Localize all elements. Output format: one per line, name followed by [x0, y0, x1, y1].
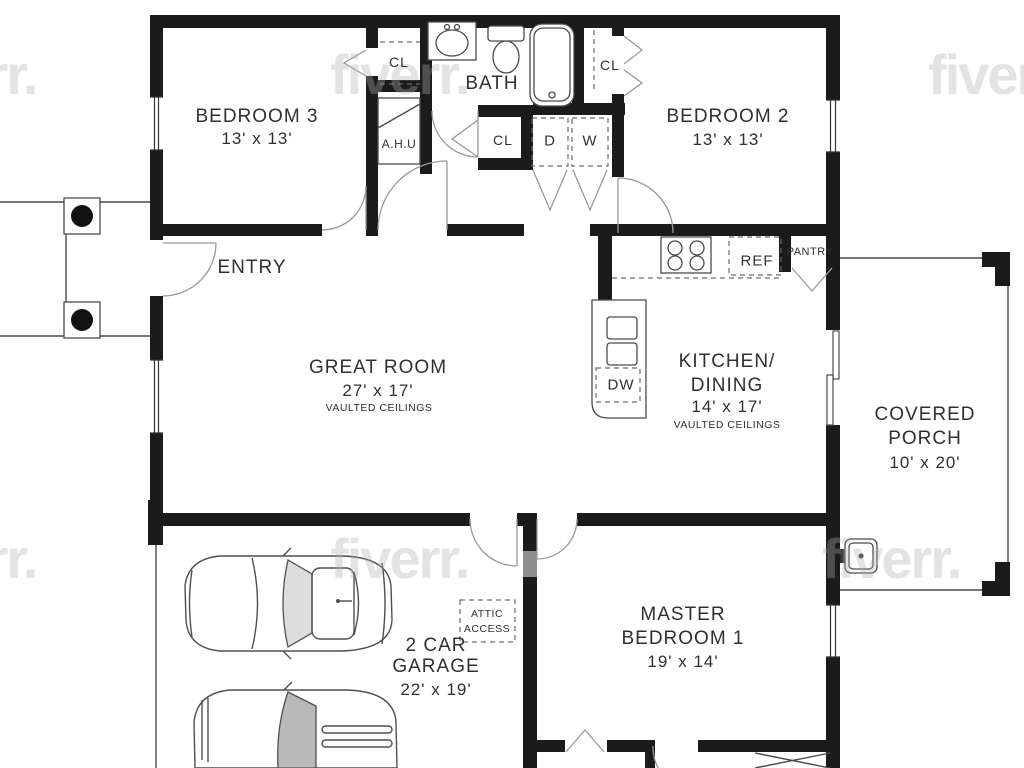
- watermark: fiverr.: [0, 42, 37, 107]
- floor-plan-drawing: [0, 0, 1024, 768]
- bedroom2-window: [826, 100, 840, 152]
- air-handler-icon: [378, 98, 420, 164]
- master-closet-door: [566, 730, 604, 752]
- bedroom2-closet-label: CL: [600, 57, 620, 73]
- bedroom3-closet-label: CL: [389, 54, 409, 70]
- porch-post-icon: [982, 252, 1010, 286]
- bathtub-icon: [530, 24, 574, 106]
- master-window: [826, 605, 840, 657]
- bedroom3-label: BEDROOM 3: [195, 106, 318, 128]
- bedroom3-dims: 13' x 13': [221, 129, 292, 149]
- entry-stoop: [0, 198, 150, 338]
- bedroom3-door: [322, 186, 366, 230]
- dishwasher-label: DW: [608, 377, 635, 394]
- entry-post-icon: [64, 302, 100, 338]
- garage-label-2: GARAGE: [392, 656, 479, 678]
- kitchen-island: [592, 300, 646, 418]
- garage-label-1: 2 CAR: [406, 635, 467, 657]
- porch-label-2: PORCH: [888, 428, 962, 450]
- entry-label: ENTRY: [217, 257, 286, 279]
- great-room-window: [150, 360, 163, 433]
- watermark: fiverr.: [822, 526, 961, 591]
- watermark: fiverr.: [928, 42, 1024, 107]
- hall-door: [378, 161, 447, 230]
- dryer-label: D: [544, 133, 556, 150]
- bedroom3-window: [150, 97, 163, 150]
- stove-icon: [661, 237, 711, 273]
- master-entry-door: [537, 519, 577, 559]
- watermark: fiverr.: [330, 42, 469, 107]
- laundry-doors: [533, 170, 607, 210]
- washer-label: W: [582, 133, 597, 150]
- floor-plan-canvas: fiverr. fiverr. fiverr. fiverr. fiverr. …: [0, 0, 1024, 768]
- pantry-label: PANTRY: [787, 246, 834, 258]
- bath-door: [432, 111, 478, 157]
- watermark: fiverr.: [0, 526, 37, 591]
- attic-access-box: [460, 600, 515, 642]
- porch-sliding-door: [827, 331, 839, 425]
- car-icon-bottom: [194, 682, 397, 768]
- porch-post-icon: [982, 562, 1010, 596]
- attic-label-2: ACCESS: [464, 623, 510, 635]
- master-label-1: MASTER: [640, 604, 725, 626]
- bedroom2-dims: 13' x 13': [692, 130, 763, 150]
- kitchen-note: VAULTED CEILINGS: [674, 419, 781, 431]
- kitchen-label-2: DINING: [691, 375, 764, 397]
- great-room-dims: 27' x 17': [342, 381, 413, 401]
- bedroom2-label: BEDROOM 2: [666, 106, 789, 128]
- great-room-label: GREAT ROOM: [309, 357, 447, 379]
- attic-label-1: ATTIC: [471, 608, 503, 620]
- garage-dims: 22' x 19': [400, 680, 471, 700]
- porch-dims: 10' x 20': [889, 453, 960, 473]
- entry-post-icon: [64, 198, 100, 234]
- hall-closet-label: CL: [493, 132, 513, 148]
- shower-icon: [755, 753, 830, 768]
- toilet-icon: [488, 26, 524, 73]
- refrigerator-label: REF: [741, 253, 774, 270]
- master-dims: 19' x 14': [647, 652, 718, 672]
- entry-door: [163, 243, 216, 296]
- air-handler-label: A.H.U: [382, 137, 417, 151]
- porch-label-1: COVERED: [875, 404, 976, 426]
- bath-label: BATH: [465, 73, 518, 95]
- great-room-note: VAULTED CEILINGS: [326, 402, 433, 414]
- kitchen-label-1: KITCHEN/: [679, 351, 776, 373]
- bedroom2-closet-doors: [624, 36, 642, 96]
- master-bath-door: [653, 746, 674, 768]
- kitchen-sink-icon: [607, 317, 637, 339]
- garage-hall-door: [470, 519, 517, 566]
- watermark: fiverr.: [330, 526, 469, 591]
- kitchen-dims: 14' x 17': [691, 397, 762, 417]
- master-label-2: BEDROOM 1: [621, 628, 744, 650]
